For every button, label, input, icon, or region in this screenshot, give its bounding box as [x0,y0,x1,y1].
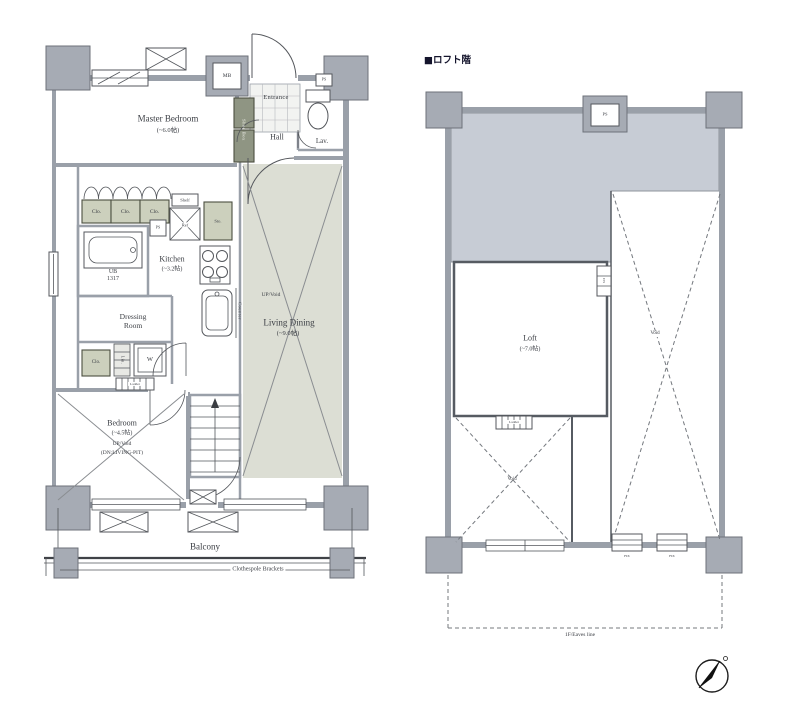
storage-box [204,202,232,240]
compass-north-icon [696,657,728,693]
shutter-box-bottom-2 [188,512,238,532]
floorplan-linework [0,0,800,711]
floorplan-canvas: Master Bedroom (~6.0帖) Entrance Hall Lav… [0,0,800,711]
closet-1 [82,200,111,223]
closet-doors [84,187,171,199]
loft-room [454,262,607,416]
ladder-hatch-right [496,416,532,429]
toilet-icon [298,74,332,148]
refrigerator-box [170,208,200,240]
meter-box [206,56,248,96]
left-plan [44,34,368,578]
stairs [190,395,240,499]
shutter-box-top [146,48,186,70]
fix-window-1 [612,534,642,551]
small-hatch-box [190,490,216,504]
bedroom-cross [58,394,184,500]
duct-space-box [597,266,611,296]
loft-roof-area [451,113,719,262]
right-plan [426,92,742,692]
side-window [49,252,58,296]
fix-window-2 [657,534,687,551]
bathtub-icon [78,226,148,296]
entrance-door [252,34,296,78]
stove-icon [200,246,230,284]
master-bedroom-window [92,70,148,86]
void-left-cross [456,418,570,542]
shoe-box [234,98,254,162]
eaves-line [448,575,722,628]
sink-icon [202,288,236,338]
washer-box [134,344,166,376]
ladder-hatch-left [116,378,154,390]
entrance-tiles [250,84,300,132]
loft-floor-title: ■ロフト階 [424,52,471,66]
void-right-cross [613,194,720,540]
pipe-space-box [583,96,627,132]
pipe-space-kitchen-box [150,220,166,236]
linen-box [114,344,130,376]
shelf-box [172,194,198,206]
shutter-box-bottom-1 [100,512,148,532]
closet-2 [111,200,140,223]
closet-4 [82,350,110,376]
